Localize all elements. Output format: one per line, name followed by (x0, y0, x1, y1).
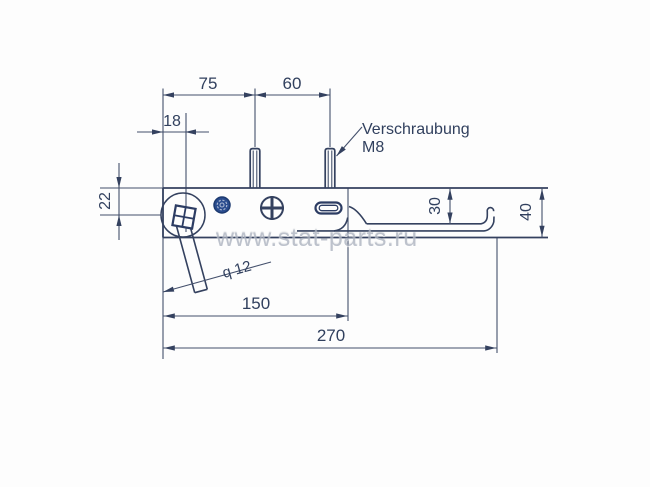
stud-group (250, 149, 335, 188)
stem-end-cap (195, 289, 208, 292)
square-hole (172, 205, 195, 228)
arrow-150-left (164, 313, 175, 318)
arrow-40-top (539, 189, 544, 200)
stud1-outline (250, 149, 260, 188)
technical-drawing-page: 75 60 18 22 30 40 150 270 q 12 Verschrau… (0, 0, 650, 487)
arrow-18-left (152, 129, 163, 134)
screw-cross-icon (260, 196, 284, 220)
arrow-60-right (319, 92, 330, 97)
dim-label-270: 270 (317, 326, 345, 345)
plate-fillet (334, 218, 348, 231)
annotation-m8: M8 (362, 139, 384, 156)
arrow-q12 (163, 287, 174, 292)
arrow-30-top (447, 189, 452, 200)
annotation-verschraubung: Verschraubung (362, 121, 470, 138)
leader-line-q12 (163, 262, 271, 292)
rivet-icon (214, 197, 230, 213)
stud2-outline (325, 149, 335, 188)
slot-icon (316, 203, 342, 214)
arrow-18-right (185, 129, 196, 134)
dim-label-18: 18 (163, 113, 181, 130)
pivot-group (161, 193, 207, 293)
arrow-30-bottom (447, 213, 452, 224)
fastener-icons (214, 196, 342, 220)
dim-label-150: 150 (242, 294, 270, 313)
arrow-150-right (336, 313, 347, 318)
arrow-75-left (163, 92, 174, 97)
arrow-270-right (485, 345, 496, 350)
dim-label-30: 30 (427, 197, 444, 215)
arrow-40-bottom (539, 226, 544, 237)
dim-label-75: 75 (199, 74, 218, 93)
arrow-22-top (116, 177, 121, 188)
arrow-22-bottom (116, 215, 121, 226)
dim-label-60: 60 (283, 74, 302, 93)
dim-label-40: 40 (518, 203, 535, 221)
slot-inner (319, 205, 338, 210)
dim-label-q12: q 12 (221, 258, 254, 282)
arrow-60-left (255, 92, 266, 97)
bracket-drawing: 75 60 18 22 30 40 150 270 q 12 Verschrau… (0, 0, 650, 487)
rivet-body (214, 197, 230, 213)
arrow-75-right (244, 92, 255, 97)
dim-label-22: 22 (97, 192, 114, 210)
arrow-270-left (164, 345, 175, 350)
annotation: Verschraubung M8 (362, 121, 470, 156)
stem-lever (176, 222, 207, 293)
hook-diagonal-edge (349, 207, 367, 224)
